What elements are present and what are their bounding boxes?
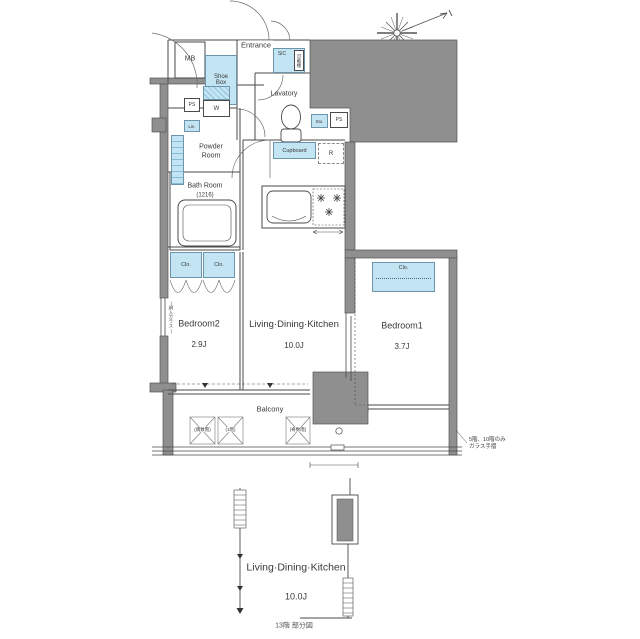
even-floors-text: (偶数階) (193, 427, 212, 432)
balcony-label: Balcony (257, 404, 284, 413)
partial-plan-caption: 13階 部分図 (275, 623, 313, 632)
glass-rail-note-line2: ガラス手摺 (469, 444, 506, 451)
bedroom2-size: 2.9J (191, 340, 206, 350)
ps-left-label: PS (189, 102, 196, 108)
closet-bedroom1-label: Clo. (399, 265, 409, 271)
kitchen-sink-icon (267, 191, 311, 223)
linen-label: Lin. (188, 124, 195, 129)
linen-closet: Lin. (184, 120, 200, 132)
toilet-icon (281, 105, 301, 142)
partial-ldk-name: Living·Dining·Kitchen (246, 561, 345, 574)
hatch-even-floors-label: (偶数階) (193, 427, 212, 433)
ldk-name: Living·Dining·Kitchen (249, 319, 339, 331)
hatch-odd-floors-label: (奇数階) (289, 427, 308, 433)
bedroom1-name: Bedroom1 (381, 320, 423, 331)
partial-ldk-size: 10.0J (285, 591, 307, 602)
refrigerator-label: R (329, 151, 333, 157)
closet-left-label: Clo. (181, 262, 191, 268)
bath-room-label: Bath Room (187, 183, 222, 192)
sic-label: SIC (278, 51, 286, 57)
movable-shelf-label: 可動棚 (296, 54, 302, 68)
refrigerator-space: R (318, 143, 344, 164)
washer-space: W (203, 100, 230, 117)
ps-right-label: PS (336, 117, 343, 123)
first-floor-text: (1階) (225, 427, 237, 432)
hatch-first-floor-label: (1階) (225, 427, 237, 433)
bathtub-icon (178, 200, 236, 246)
window-note-label: (網入ガラス) (168, 301, 174, 334)
closet-bedroom2-right: Clo. (203, 252, 235, 278)
odd-floors-text: (奇数階) (289, 427, 308, 432)
cupboard-label: Cupboard (282, 148, 306, 154)
lavatory-label: Lavatory (271, 91, 298, 100)
bath-module-label: (1216) (196, 192, 213, 200)
pipe-space-left: PS (184, 98, 200, 112)
bedroom1-size: 3.7J (394, 342, 409, 352)
floor-plan: Shoe Box SIC 可動棚 W PS Lin. Sto. PS Cupbo… (0, 0, 640, 639)
closet-bedroom2-left: Clo. (170, 252, 202, 278)
powder-room-label: Powder Room (189, 143, 233, 161)
washer-label: W (214, 106, 220, 112)
storage-sto: Sto. (311, 114, 328, 128)
cupboard: Cupboard (273, 142, 316, 159)
sto-label: Sto. (315, 119, 323, 124)
shoe-box-label: Shoe Box (208, 74, 234, 86)
pipe-space-right: PS (330, 112, 348, 128)
closet-bedroom1: Clo. (372, 262, 435, 292)
ldk-size: 10.0J (284, 341, 304, 351)
linen-shelf-cabinet (171, 135, 184, 185)
glass-rail-note: 5階、10階のみ ガラス手摺 (469, 437, 506, 451)
mb-label: MB (185, 56, 196, 65)
vanity-cabinet (203, 86, 230, 100)
entrance-label: Entrance (239, 40, 273, 49)
closet-mid-label: Clo. (214, 262, 224, 268)
sic-shelf-strip: 可動棚 (294, 50, 304, 71)
kitchen-counter (262, 186, 345, 234)
bedroom2-name: Bedroom2 (178, 318, 220, 329)
hanger-pipe (376, 278, 431, 279)
